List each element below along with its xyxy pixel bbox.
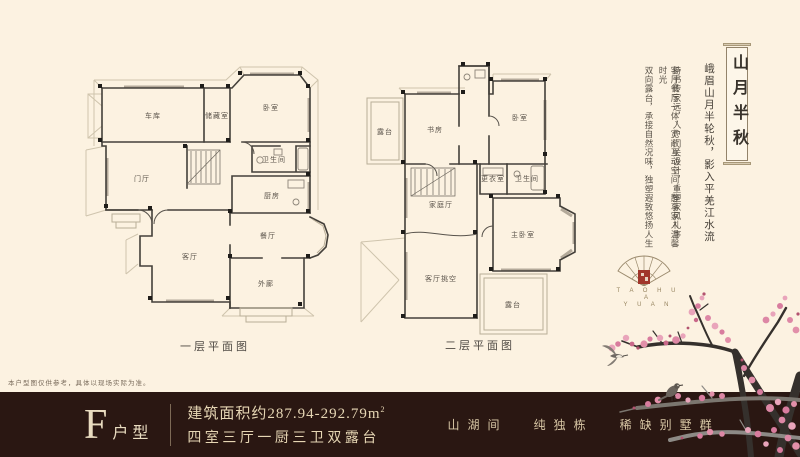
entry-steps <box>112 214 326 322</box>
room-label: 客厅挑空 <box>425 274 457 283</box>
area-line: 建筑面积约287.94-292.79m2 <box>187 402 385 423</box>
room-label: 书房 <box>427 125 443 134</box>
room-label: 露台 <box>505 300 521 309</box>
disclaimer-text: 本户型图仅供参考，具体以现场实际为准。 <box>8 377 151 387</box>
room-label: 客厅 <box>182 252 198 261</box>
room-label: 卫生间 <box>262 155 286 164</box>
slogan-segment: 山湖间 <box>448 416 508 433</box>
bottom-bar: F 户型 建筑面积约287.94-292.79m2 四室三厅一厨三卫双露台 山湖… <box>0 392 800 457</box>
room-label: 卫生间 <box>515 174 539 183</box>
slogan-segment: 纯独栋 <box>534 416 594 433</box>
layout-line: 四室三厅一厨三卫双露台 <box>187 427 385 447</box>
title-scroll-frame: 山月半秋 <box>726 47 748 161</box>
outer-walls <box>102 75 328 308</box>
room-label: 卧室 <box>512 113 528 122</box>
seal-icon <box>638 270 650 284</box>
area-superscript: 2 <box>381 405 386 414</box>
unit-type-letter: F <box>84 404 107 446</box>
room-label: 更衣室 <box>481 174 505 183</box>
floor2-caption: 二层平面图 <box>360 337 600 353</box>
room-label: 储藏室 <box>205 111 229 120</box>
poem-line: 峨眉山月半轮秋，影入平羌江水流 <box>701 63 716 249</box>
copy-column-3: 双向露台，承接自然况味，独塑遐致悠扬人生 <box>643 66 655 252</box>
room-label: 厨房 <box>264 191 280 200</box>
room-label: 主卧室 <box>511 230 535 239</box>
slogan-segment: 稀缺别墅群 <box>620 416 720 433</box>
room-label: 家庭厅 <box>429 200 453 209</box>
slogan: 山湖间纯独栋稀缺别墅群 <box>448 416 746 433</box>
room-labels-floor1: 车库储藏室卧室卫生间厨房门厅餐厅客厅外廊 <box>134 103 286 288</box>
room-label: 露台 <box>377 127 393 136</box>
logo-line2: Y U A N <box>610 302 686 309</box>
logo-text: T A O H U A Y U A N <box>610 288 686 309</box>
terraces <box>367 98 547 334</box>
floorplan-first-floor: 车库储藏室卧室卫生间厨房门厅餐厅客厅外廊 <box>82 50 332 350</box>
divider-line <box>170 404 171 446</box>
logo-line1: T A O H U A <box>610 288 686 302</box>
room-labels-floor2: 露台书房卧室更衣室卫生间家庭厅主卧室客厅挑空露台 <box>377 113 539 309</box>
floor1-caption: 一层平面图 <box>80 338 350 354</box>
area-text: 建筑面积约287.94-292.79m <box>187 406 380 422</box>
spec-block: 建筑面积约287.94-292.79m2 四室三厅一厨三卫双露台 <box>187 402 385 447</box>
fan-logo-icon <box>612 246 676 286</box>
bath-fixtures-2 <box>464 70 544 190</box>
room-label: 卧室 <box>263 103 279 112</box>
copy-column-2: 客厅餐厅一体，宽敞互动空间，静享家人温馨时光 <box>657 66 681 252</box>
roof-outline <box>86 67 318 316</box>
floorplan-second-floor: 露台书房卧室更衣室卫生间家庭厅主卧室客厅挑空露台 <box>355 56 585 356</box>
flying-bird-icon <box>602 345 628 366</box>
room-label: 车库 <box>145 111 161 120</box>
unit-type-suffix: 户型 <box>112 419 152 443</box>
room-label: 餐厅 <box>260 231 276 240</box>
poster-canvas: 车库储藏室卧室卫生间厨房门厅餐厅客厅外廊 一层平面图 <box>0 0 800 457</box>
page-title: 山月半秋 <box>729 54 747 158</box>
room-label: 外廊 <box>258 279 274 288</box>
stairs-2 <box>411 168 455 196</box>
room-label: 门厅 <box>134 174 150 183</box>
stairs <box>187 150 220 184</box>
